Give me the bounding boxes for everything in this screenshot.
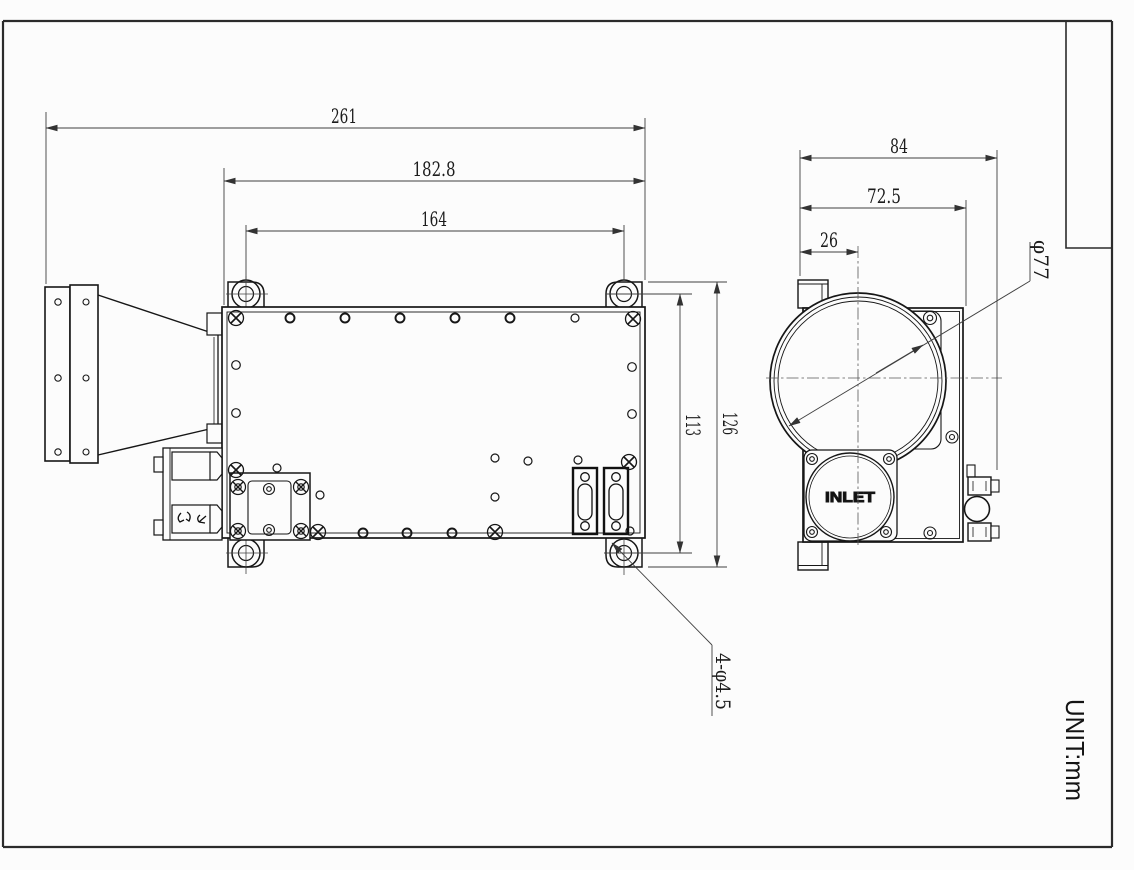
dim-overall-depth: 84 xyxy=(800,134,997,158)
dim-26-label: 26 xyxy=(820,228,838,252)
dim-flange-width: 182.8 xyxy=(224,157,645,181)
dim-overall-height: 126 xyxy=(717,282,742,567)
neck-tab-bottom xyxy=(207,424,222,443)
frame-corner-block xyxy=(1066,21,1112,248)
front-view xyxy=(45,276,645,575)
dim-164-label: 164 xyxy=(421,207,447,231)
callout-d77-label: φ77 xyxy=(1029,240,1053,280)
callout-4-d4-5-label: 4-φ4.5 xyxy=(711,653,735,710)
side-plates xyxy=(45,285,98,463)
lug-top-right xyxy=(606,282,642,308)
callout-mount-holes: 4-φ4.5 xyxy=(612,543,735,716)
dim-182-8-label: 182.8 xyxy=(413,157,456,181)
dim-113-label: 113 xyxy=(681,414,705,436)
dim-body-depth: 72.5 xyxy=(800,184,966,208)
drawing-sheet: INLET xyxy=(0,0,1134,870)
side-view: INLET xyxy=(766,246,1002,570)
dim-126-label: 126 xyxy=(718,412,742,435)
dim-overall-width: 261 xyxy=(46,104,645,128)
unit-label: UNIT:mm xyxy=(1060,699,1090,801)
dim-84-label: 84 xyxy=(890,134,908,158)
valve-fitting xyxy=(965,465,1000,541)
inlet-label: INLET xyxy=(825,489,875,506)
connector-bracket xyxy=(154,448,222,540)
neck-tab-top xyxy=(207,313,222,335)
horn xyxy=(98,295,222,455)
mounting-plate xyxy=(230,473,310,540)
technical-drawing: INLET xyxy=(0,0,1134,870)
dim-lens-offset: 26 xyxy=(800,228,858,252)
dim-hole-spacing-v: 113 xyxy=(680,294,705,553)
dim-261-label: 261 xyxy=(331,104,357,128)
inlet-port: INLET xyxy=(804,450,897,541)
dim-72-5-label: 72.5 xyxy=(867,184,901,208)
dim-hole-spacing-h: 164 xyxy=(246,207,624,231)
